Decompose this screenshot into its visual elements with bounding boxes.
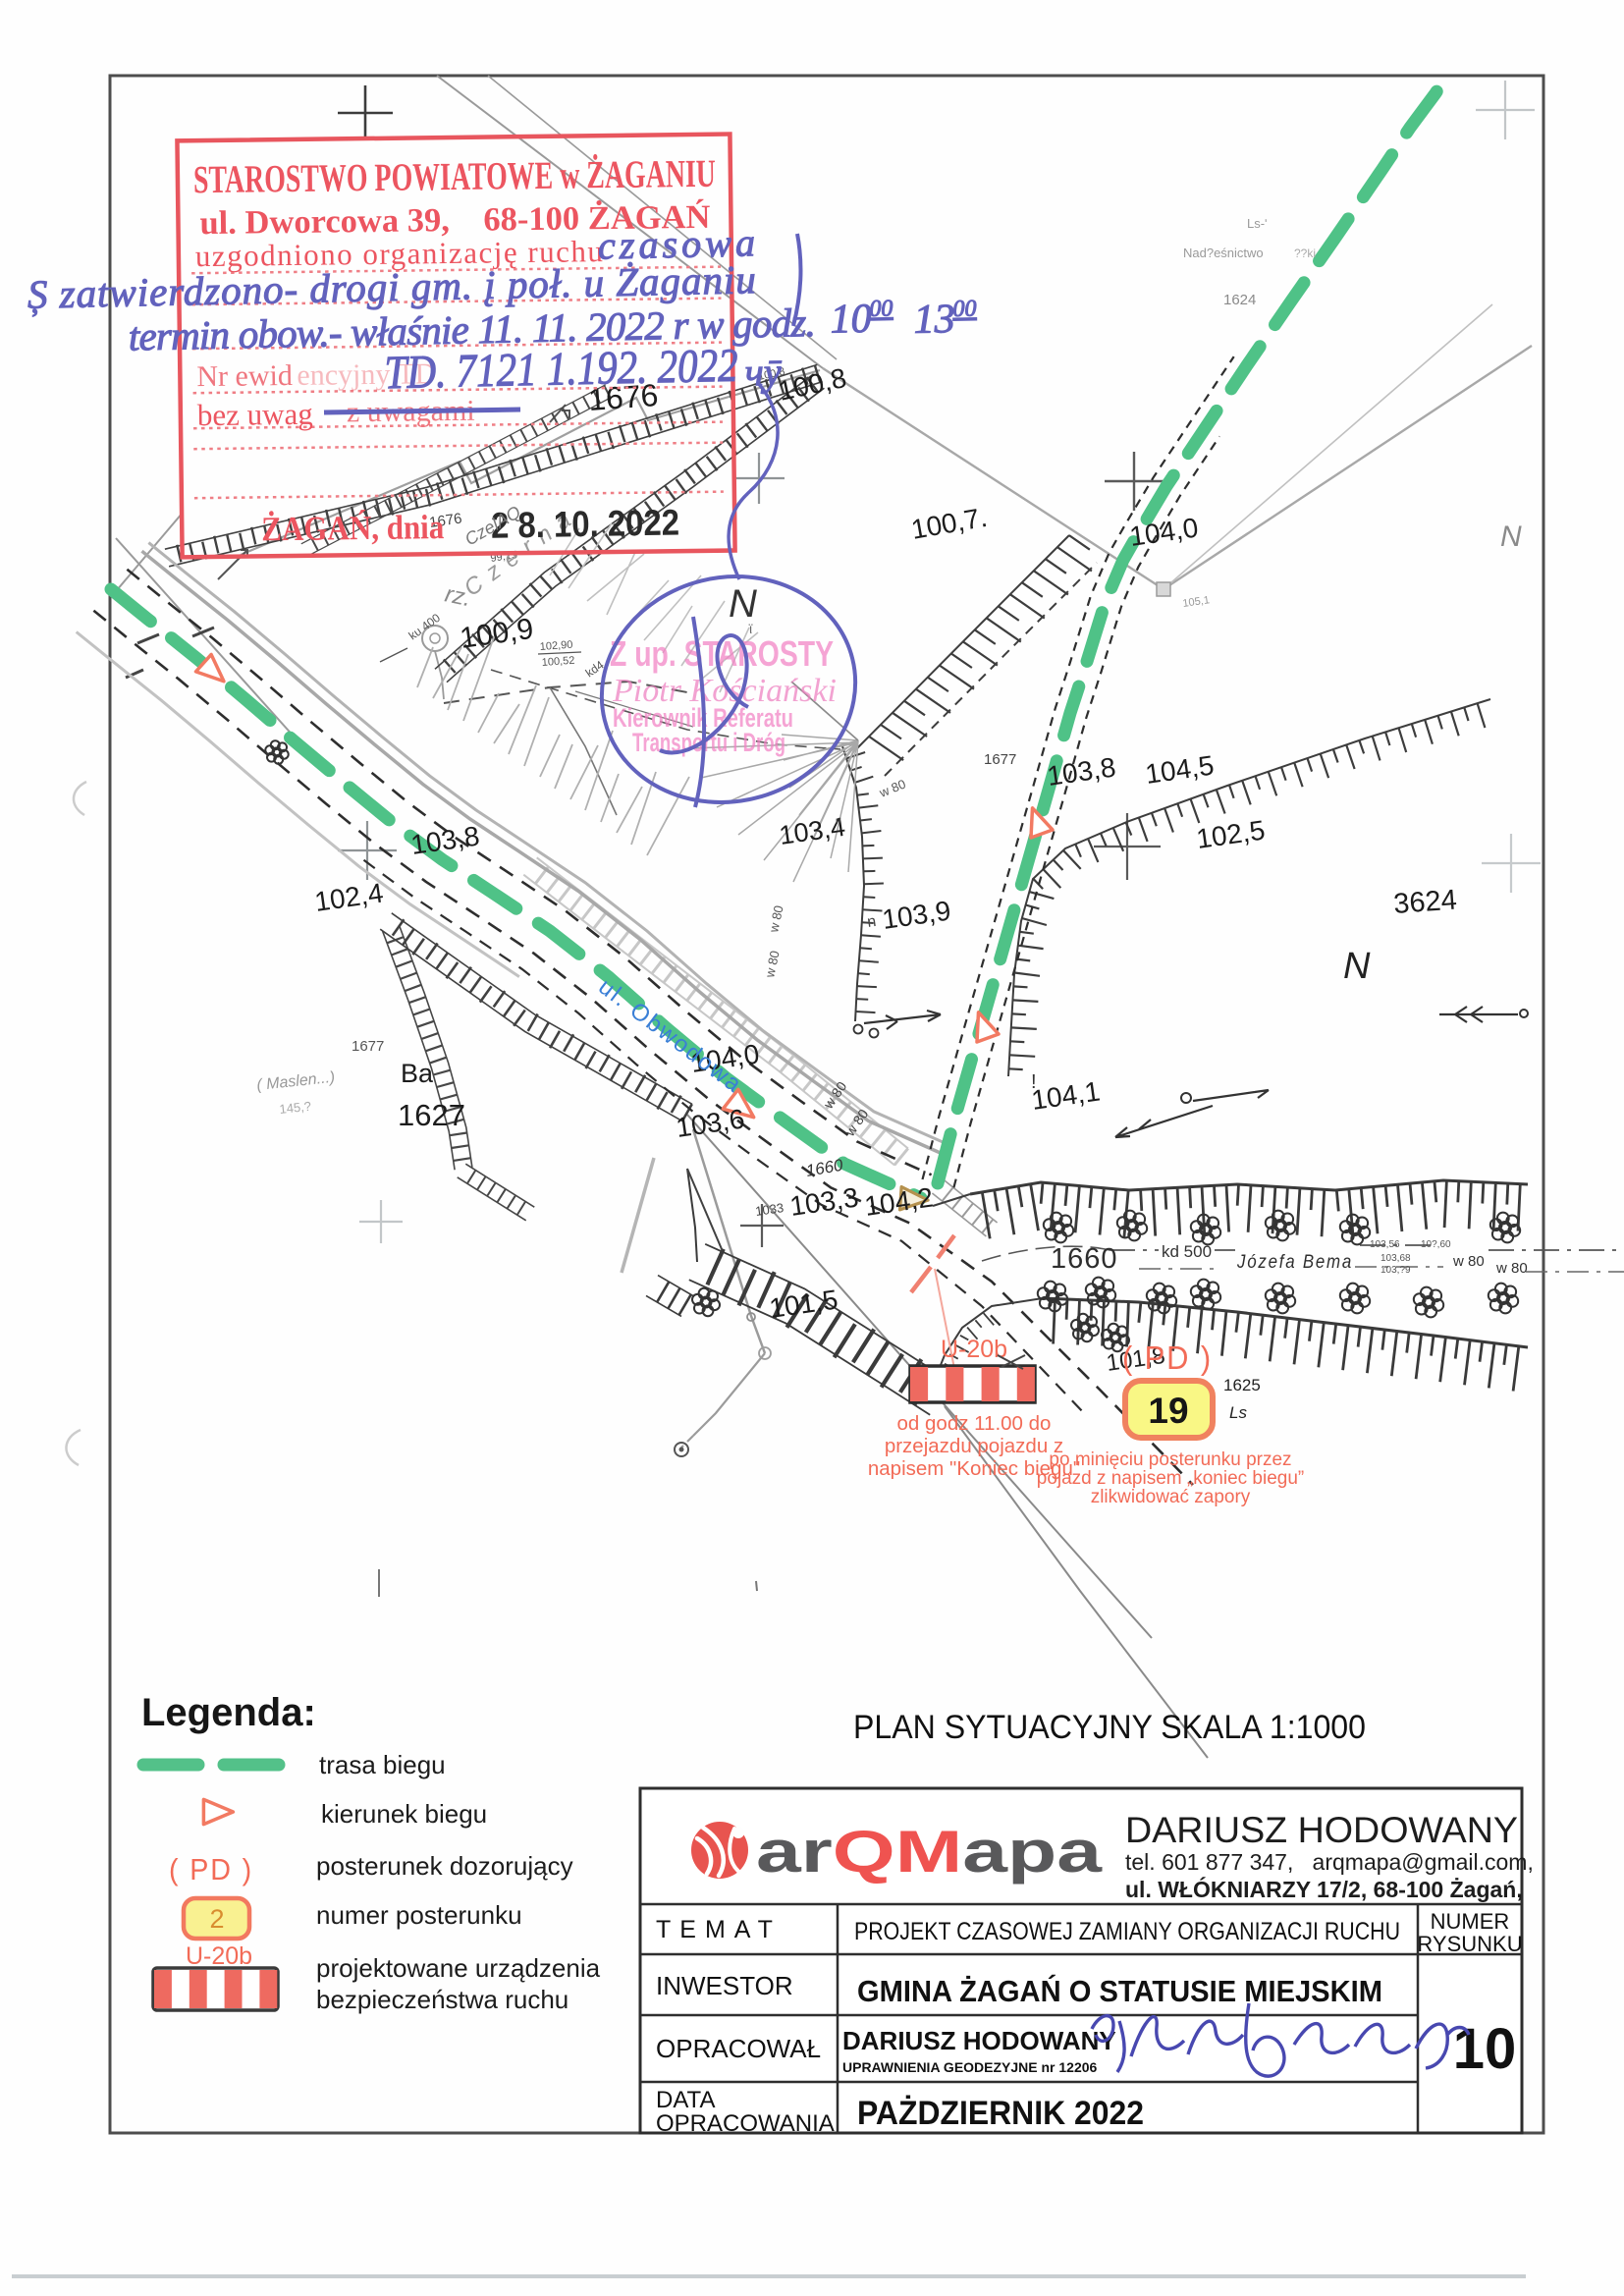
svg-text:3624: 3624 (1392, 885, 1458, 920)
svg-text:ul. WŁÓKNIARZY 17/2, 68-100 Ża: ul. WŁÓKNIARZY 17/2, 68-100 Żagań, (1125, 1876, 1523, 1902)
svg-text:OPRACOWAŁ: OPRACOWAŁ (656, 2034, 821, 2063)
svg-text:103,?9: 103,?9 (1380, 1265, 1411, 1276)
svg-text:UPRAWNIENIA GEODEZYJNE nr 1220: UPRAWNIENIA GEODEZYJNE nr 12206 (842, 2059, 1098, 2075)
svg-text:TEMAT: TEMAT (656, 1916, 782, 1943)
svg-text:100,52: 100,52 (541, 655, 574, 669)
svg-text:N: N (1500, 520, 1522, 553)
svg-text:PLAN SYTUACYJNY SKALA 1:1000: PLAN SYTUACYJNY SKALA 1:1000 (853, 1709, 1366, 1746)
svg-text:arQMapa: arQMapa (756, 1819, 1103, 1885)
svg-text:Józefa Bema: Józefa Bema (1236, 1252, 1353, 1273)
svg-text:U-20b: U-20b (186, 1942, 252, 1970)
svg-text:kierunek biegu: kierunek biegu (321, 1799, 487, 1829)
svg-text:GMINA ŻAGAŃ O STATUSIE MIEJSKI: GMINA ŻAGAŃ O STATUSIE MIEJSKIM (857, 1974, 1382, 2008)
svg-text:( PD ): ( PD ) (1122, 1339, 1213, 1376)
svg-text:10?,60: 10?,60 (1421, 1239, 1451, 1250)
svg-text:13: 13 (913, 297, 955, 343)
svg-text:( PD ): ( PD ) (169, 1852, 253, 1886)
svg-text:Ls-ʹ: Ls-ʹ (1247, 216, 1268, 231)
svg-text:Nr ewid: Nr ewid (196, 359, 293, 393)
svg-text:1625: 1625 (1223, 1376, 1261, 1394)
svg-text:pojazd z napisem „koniec biegu: pojazd z napisem „koniec biegu” (1037, 1468, 1305, 1489)
svg-text:ŻAGAŃ, dnia: ŻAGAŃ, dnia (261, 508, 444, 548)
svg-text:po minięciu posterunku przez: po minięciu posterunku przez (1049, 1449, 1291, 1470)
svg-text:U-20b: U-20b (941, 1336, 1007, 1363)
svg-text:Ls: Ls (1229, 1403, 1247, 1422)
svg-text:Transportu i Dróg: Transportu i Dróg (632, 728, 785, 757)
svg-text:trasa biegu: trasa biegu (319, 1750, 446, 1779)
svg-text:STAROSTWO POWIATOWE w ŻAGANIU: STAROSTWO POWIATOWE w ŻAGANIU (193, 151, 717, 201)
svg-text:10: 10 (830, 297, 872, 343)
svg-text:103,56: 103,56 (1370, 1239, 1400, 1250)
svg-text:1627: 1627 (398, 1098, 465, 1132)
svg-text:103,68: 103,68 (1380, 1253, 1411, 1264)
svg-text:kd 500: kd 500 (1162, 1242, 1212, 1261)
svg-text:PAŻDZIERNIK 2022: PAŻDZIERNIK 2022 (857, 2095, 1144, 2132)
svg-text:bez uwag: bez uwag (197, 397, 313, 432)
svg-text:N: N (1343, 946, 1371, 987)
svg-text:posterunek dozorujący: posterunek dozorujący (316, 1851, 573, 1881)
svg-text:TD. 7121 1.192. 2022: TD. 7121 1.192. 2022 (384, 340, 738, 400)
svg-text:przejazdu pojazdu z: przejazdu pojazdu z (885, 1435, 1063, 1457)
svg-text:DATA: DATA (656, 2087, 715, 2113)
svg-text:2: 2 (209, 1904, 224, 1934)
svg-text:DARIUSZ HODOWANY: DARIUSZ HODOWANY (1125, 1810, 1518, 1850)
svg-text:PROJEKT CZASOWEJ ZAMIANY ORGAN: PROJEKT CZASOWEJ ZAMIANY ORGANIZACJI RUC… (854, 1918, 1400, 1945)
svg-text:2 8. 10. 2022: 2 8. 10. 2022 (491, 502, 680, 545)
svg-text:1677: 1677 (984, 751, 1016, 768)
svg-text:INWESTOR: INWESTOR (656, 1971, 793, 2000)
svg-text:Nad?eśnictwo: Nad?eśnictwo (1183, 246, 1264, 260)
svg-text:Legenda:: Legenda: (141, 1691, 316, 1734)
svg-text:!: ! (1031, 1071, 1037, 1093)
svg-text:od godz 11.00 do: od godz 11.00 do (897, 1412, 1052, 1435)
svg-text:00: 00 (952, 297, 977, 322)
svg-text:1624: 1624 (1223, 292, 1256, 308)
svg-text:w 80: w 80 (1452, 1253, 1485, 1270)
svg-text:Ba: Ba (401, 1059, 434, 1088)
svg-text:1677: 1677 (352, 1038, 384, 1055)
svg-text:NUMER: NUMER (1431, 1909, 1510, 1934)
svg-text:projektowane urządzenia: projektowane urządzenia (316, 1953, 601, 1983)
svg-text:zlikwidować zapory: zlikwidować zapory (1091, 1487, 1251, 1507)
svg-text:tel. 601 877 347, arqmapa@gm: tel. 601 877 347, arqmapa@gmail.com, (1125, 1849, 1534, 1875)
svg-text:numer posterunku: numer posterunku (316, 1900, 522, 1930)
svg-text:00: 00 (869, 296, 893, 321)
svg-text:1660: 1660 (1051, 1243, 1118, 1275)
svg-text:RYSUNKU: RYSUNKU (1417, 1932, 1522, 1956)
svg-text:OPRACOWANIA: OPRACOWANIA (656, 2110, 835, 2137)
svg-text:??ki: ??ki (1294, 246, 1316, 260)
svg-text:19: 19 (1148, 1391, 1188, 1431)
svg-text:102,90: 102,90 (539, 639, 572, 653)
svg-text:w 80: w 80 (1495, 1260, 1528, 1277)
svg-text:N: N (729, 582, 757, 626)
svg-text:DARIUSZ HODOWANY: DARIUSZ HODOWANY (842, 2026, 1116, 2055)
svg-text:bezpieczeństwa ruchu: bezpieczeństwa ruchu (316, 1985, 568, 2014)
